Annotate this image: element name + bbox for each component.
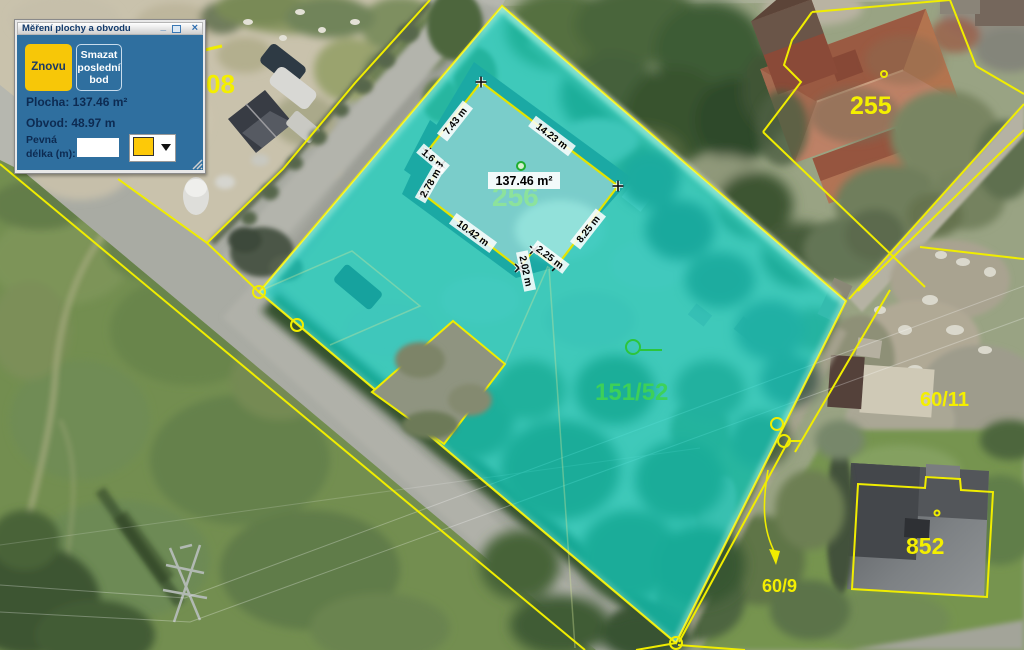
svg-text:60/9: 60/9 — [762, 576, 797, 596]
svg-text:60/11: 60/11 — [920, 389, 969, 411]
svg-text:852: 852 — [906, 533, 944, 559]
svg-text:151/52: 151/52 — [595, 379, 668, 406]
svg-text:137.46 m²: 137.46 m² — [496, 174, 553, 188]
svg-text:255: 255 — [850, 92, 892, 120]
svg-text:08: 08 — [206, 69, 235, 99]
